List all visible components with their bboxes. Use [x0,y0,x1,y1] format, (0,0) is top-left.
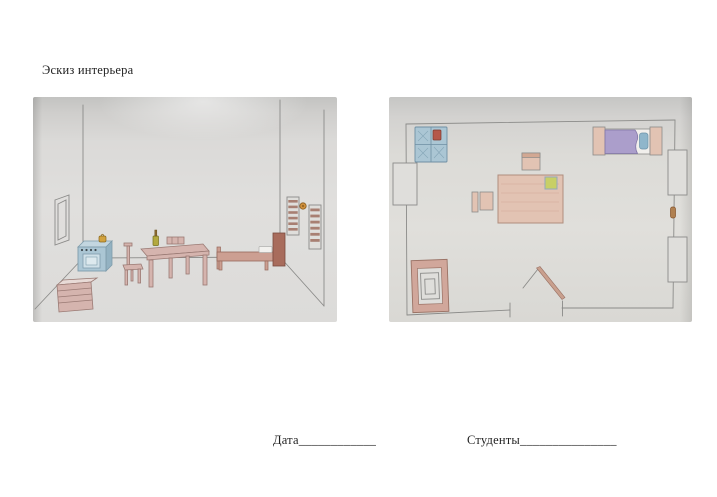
table [141,244,209,287]
floor-plan-sketch-photo [389,97,692,322]
headboard [273,233,285,266]
bottle [153,230,159,246]
pillow [640,133,649,149]
wall-clock [300,203,306,209]
wall-vent [671,207,676,218]
students-label: Студенты_______________ [467,433,617,448]
cabinet-top [411,259,449,312]
window-left [393,163,417,205]
chair [123,243,143,285]
chair-behind-table [167,237,184,244]
chair-left [472,192,493,212]
kettle-red [433,130,441,140]
worksheet-page: Эскиз интерьера [0,0,717,497]
louver-window-upper [287,197,299,235]
kettle [99,234,106,242]
perspective-sketch [33,97,337,322]
floor-plan-sketch [389,97,692,322]
page-title: Эскиз интерьера [42,63,133,78]
window-right-upper [668,150,687,195]
louver-window-lower [309,205,321,249]
table-top [498,175,563,223]
window-right-lower [668,237,687,282]
door-open [510,267,565,318]
bed-top [593,127,662,155]
chair-top [522,153,540,170]
stove-top [415,127,447,162]
napkin [545,177,557,189]
pillow [259,247,272,253]
blanket [605,130,638,154]
bed [217,233,285,270]
perspective-sketch-photo [33,97,337,322]
window-left-wall [55,195,69,245]
shelf-stack [57,278,97,312]
room-lines [35,100,324,309]
date-label: Дата____________ [273,433,376,448]
